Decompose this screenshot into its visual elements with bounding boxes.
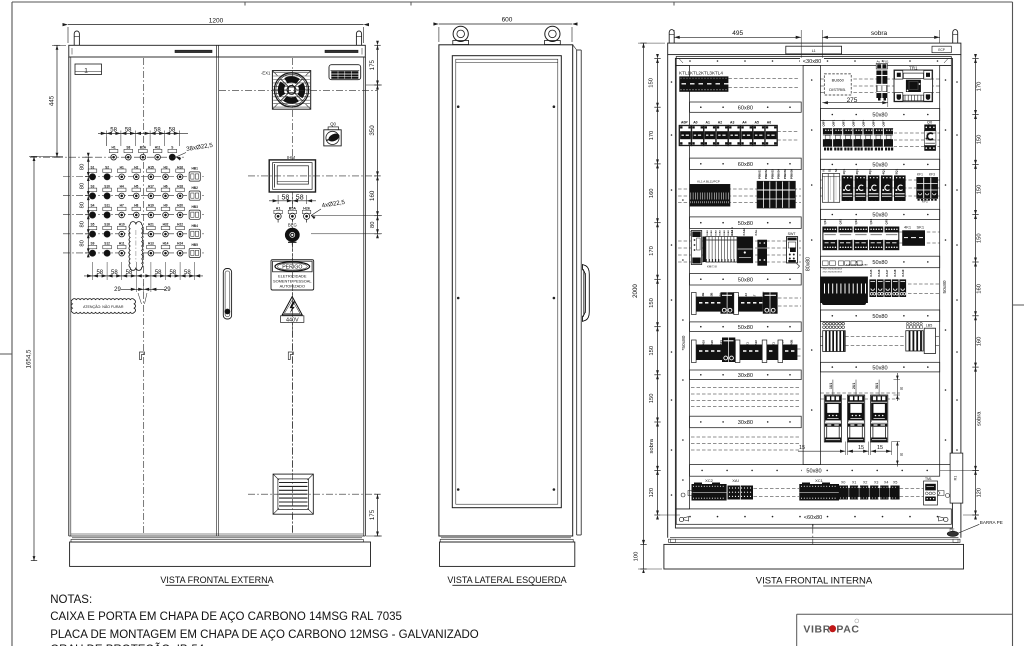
svg-text:30x80: 30x80 xyxy=(738,373,753,379)
svg-text:CAIXA E PORTA EM CHAPA DE AÇO: CAIXA E PORTA EM CHAPA DE AÇO CARBONO 14… xyxy=(50,611,402,623)
svg-text:Q0F4: Q0F4 xyxy=(862,119,866,126)
svg-text:S9: S9 xyxy=(91,242,95,246)
svg-text:H20: H20 xyxy=(177,204,183,208)
svg-text:VISTA FRONTAL INTERNA: VISTA FRONTAL INTERNA xyxy=(756,576,873,587)
svg-text:50x80: 50x80 xyxy=(738,221,753,227)
svg-text:S12: S12 xyxy=(104,242,110,246)
svg-text:170: 170 xyxy=(977,82,983,92)
svg-text:H22: H22 xyxy=(177,223,183,227)
svg-text:P0B6S4: P0B6S4 xyxy=(777,168,781,179)
svg-text:4Q1: 4Q1 xyxy=(881,168,885,174)
svg-text:S11: S11 xyxy=(104,204,110,208)
svg-text:XC1: XC1 xyxy=(815,478,824,483)
svg-text:S1B3: S1B3 xyxy=(707,230,709,236)
svg-text:A4: A4 xyxy=(742,120,746,124)
svg-text:FU1: FU1 xyxy=(883,60,889,64)
svg-text:160: 160 xyxy=(977,284,983,294)
svg-text:80: 80 xyxy=(370,222,376,228)
svg-text:XAI: XAI xyxy=(732,478,738,483)
svg-text:R1: R1 xyxy=(954,476,958,481)
svg-text:80: 80 xyxy=(80,164,86,170)
svg-text:A5: A5 xyxy=(755,120,759,124)
svg-text:*50x80: *50x80 xyxy=(681,335,687,350)
svg-text:2000: 2000 xyxy=(632,284,639,298)
svg-text:58: 58 xyxy=(126,270,133,276)
svg-text:15: 15 xyxy=(799,445,805,451)
svg-text:Av: Av xyxy=(877,60,881,64)
svg-text:H14: H14 xyxy=(163,242,169,246)
svg-text:S1B3: S1B3 xyxy=(715,230,717,236)
svg-text:SK1: SK1 xyxy=(917,224,925,229)
svg-text:sobra: sobra xyxy=(977,411,983,426)
svg-text:KA15: KA15 xyxy=(869,269,873,276)
svg-text:50x80: 50x80 xyxy=(806,469,821,475)
svg-text:H32: H32 xyxy=(163,223,169,227)
svg-text:PAC: PAC xyxy=(836,624,859,636)
svg-text:H7: H7 xyxy=(120,204,124,208)
svg-text:P0B6S6: P0B6S6 xyxy=(790,168,794,179)
svg-text:KF3: KF3 xyxy=(929,173,935,177)
svg-text:2U1: 2U1 xyxy=(852,383,856,389)
svg-text:2Q1: 2Q1 xyxy=(855,168,859,174)
svg-text:170: 170 xyxy=(649,131,655,141)
svg-text:150: 150 xyxy=(649,78,655,88)
svg-text:S5: S5 xyxy=(91,223,95,227)
svg-text:H5: H5 xyxy=(134,184,138,188)
svg-text:KTL1KTL2KTL3KTL4: KTL1KTL2KTL3KTL4 xyxy=(679,70,723,75)
svg-text:3Q1: 3Q1 xyxy=(868,168,872,174)
svg-text:S2: S2 xyxy=(105,165,109,169)
svg-text:Q0F6: Q0F6 xyxy=(872,119,876,126)
svg-text:58: 58 xyxy=(96,270,103,276)
svg-text:QF2: QF2 xyxy=(838,218,842,224)
svg-text:KA18: KA18 xyxy=(893,269,897,276)
svg-text:5Q1: 5Q1 xyxy=(894,168,898,174)
svg-text:60x80: 60x80 xyxy=(738,105,753,111)
svg-text:B1A: B1A xyxy=(140,146,147,150)
svg-text:H11: H11 xyxy=(155,146,161,150)
svg-text:Q0F2: Q0F2 xyxy=(842,119,846,126)
svg-text:HB5: HB5 xyxy=(192,243,199,247)
svg-text:LB5: LB5 xyxy=(926,324,932,328)
svg-text:80: 80 xyxy=(80,202,86,208)
svg-text:80: 80 xyxy=(80,221,86,227)
svg-text:58: 58 xyxy=(169,128,176,134)
svg-text:H24: H24 xyxy=(177,242,183,246)
svg-text:50x80: 50x80 xyxy=(872,365,887,371)
svg-text:P0B6S3: P0B6S3 xyxy=(770,168,774,179)
svg-text:H1: H1 xyxy=(112,146,116,150)
svg-text:58: 58 xyxy=(125,128,132,134)
svg-text:58: 58 xyxy=(111,270,118,276)
svg-text:KL1 A BL11/PCP: KL1 A BL11/PCP xyxy=(697,180,719,184)
svg-text:29: 29 xyxy=(164,287,171,293)
svg-text:50x80: 50x80 xyxy=(738,325,753,331)
svg-text:X5: X5 xyxy=(893,480,897,484)
svg-text:150: 150 xyxy=(649,346,655,356)
svg-text:1200: 1200 xyxy=(209,18,224,25)
svg-text:ECP: ECP xyxy=(938,48,945,52)
svg-text:30x80: 30x80 xyxy=(738,420,753,426)
svg-text:Q0F5: Q0F5 xyxy=(822,119,826,126)
svg-text:TM1: TM1 xyxy=(925,477,932,481)
svg-text:PLACA DE MONTAGEM EM CHAPA DE: PLACA DE MONTAGEM EM CHAPA DE AÇO CARBON… xyxy=(50,629,479,641)
svg-text:H10: H10 xyxy=(119,223,125,227)
svg-text:H18: H18 xyxy=(177,184,183,188)
svg-text:P0B6S5: P0B6S5 xyxy=(783,168,787,179)
svg-text:150: 150 xyxy=(976,135,982,145)
svg-text:120: 120 xyxy=(649,488,655,498)
svg-text:S3: S3 xyxy=(834,168,838,172)
svg-text:58: 58 xyxy=(155,270,162,276)
svg-text:150: 150 xyxy=(649,298,655,308)
svg-text:50x80: 50x80 xyxy=(738,277,753,283)
svg-text:4K1: 4K1 xyxy=(904,224,912,229)
svg-text:S1B3: S1B3 xyxy=(711,230,713,236)
svg-text:A3: A3 xyxy=(730,120,734,124)
svg-text:BU660: BU660 xyxy=(832,78,845,83)
svg-text:50x80: 50x80 xyxy=(942,280,948,293)
svg-text:HB2: HB2 xyxy=(192,186,199,190)
svg-text:S1: S1 xyxy=(828,168,832,172)
svg-text:50x80: 50x80 xyxy=(872,260,887,266)
svg-text:KA17: KA17 xyxy=(885,269,889,276)
svg-text:X0: X0 xyxy=(841,480,845,484)
svg-text:A1A2A3A4A5A6A7A8: A1A2A3A4A5A6A7A8 xyxy=(846,263,868,266)
svg-text:A0: A0 xyxy=(693,120,697,124)
svg-text:A2: A2 xyxy=(718,120,722,124)
svg-text:H9: H9 xyxy=(163,204,167,208)
svg-text:VIBR: VIBR xyxy=(803,624,831,636)
svg-text:58: 58 xyxy=(154,128,161,134)
svg-text:H2: H2 xyxy=(134,165,138,169)
svg-text:KA12: KA12 xyxy=(742,228,746,236)
svg-text:A1: A1 xyxy=(276,207,281,211)
svg-text:KAL: KAL xyxy=(754,229,758,235)
svg-text:<60x80: <60x80 xyxy=(804,515,823,521)
svg-text:sobra: sobra xyxy=(649,438,655,453)
svg-text:X4: X4 xyxy=(884,480,888,484)
svg-text:S1: S1 xyxy=(91,165,95,169)
svg-text:15: 15 xyxy=(858,445,864,451)
svg-text:445: 445 xyxy=(49,95,56,106)
svg-text:IHM: IHM xyxy=(287,155,295,160)
svg-text:XC2: XC2 xyxy=(705,478,714,483)
svg-text:-EX1: -EX1 xyxy=(261,71,271,76)
svg-text:V1: V1 xyxy=(822,168,826,172)
svg-text:160: 160 xyxy=(369,190,376,201)
svg-text:80: 80 xyxy=(80,183,86,189)
svg-text:175: 175 xyxy=(369,509,376,520)
svg-text:H16: H16 xyxy=(177,165,183,169)
svg-text:150: 150 xyxy=(976,233,982,243)
svg-text:H13: H13 xyxy=(148,242,154,246)
svg-text:DISTRIB.: DISTRIB. xyxy=(829,87,846,92)
svg-text:S: S xyxy=(171,146,173,150)
svg-text:H3: H3 xyxy=(163,165,167,169)
svg-text:50x80: 50x80 xyxy=(872,113,887,119)
svg-text:QF3: QF3 xyxy=(854,218,858,224)
svg-text:100: 100 xyxy=(634,552,640,562)
svg-text:58: 58 xyxy=(169,270,176,276)
svg-text:120: 120 xyxy=(977,488,983,498)
svg-text:60x80: 60x80 xyxy=(738,162,753,168)
svg-text:BARRA PE: BARRA PE xyxy=(980,520,1003,525)
svg-text:X1: X1 xyxy=(852,480,856,484)
svg-text:sobra: sobra xyxy=(871,30,888,37)
svg-text:X3: X3 xyxy=(874,480,878,484)
svg-text:KA19: KA19 xyxy=(901,269,905,276)
svg-text:150: 150 xyxy=(649,394,655,404)
svg-text:A0P: A0P xyxy=(681,120,688,124)
svg-text:58: 58 xyxy=(110,128,117,134)
svg-text:170: 170 xyxy=(649,246,655,256)
svg-text:160: 160 xyxy=(977,337,983,347)
svg-text:58: 58 xyxy=(282,195,290,202)
svg-text:Q0: Q0 xyxy=(927,120,933,125)
svg-text:XXX XXXXXXXXXX: XXX XXXXXXXXXX xyxy=(823,268,843,270)
svg-text:S8: S8 xyxy=(126,146,130,150)
svg-text:P0B6S1: P0B6S1 xyxy=(758,168,762,179)
svg-text:VISTA LATERAL ESQUERDA: VISTA LATERAL ESQUERDA xyxy=(447,575,566,585)
svg-text:160: 160 xyxy=(649,188,655,198)
svg-text:A6: A6 xyxy=(767,120,771,124)
svg-text:S1B3: S1B3 xyxy=(720,230,722,236)
svg-text:QF4: QF4 xyxy=(869,218,873,224)
svg-text:B5A: B5A xyxy=(289,207,297,211)
svg-text:Q0F1: Q0F1 xyxy=(832,119,836,126)
svg-text:495: 495 xyxy=(732,30,743,37)
svg-text:275: 275 xyxy=(847,97,858,104)
svg-text:<30x80: <30x80 xyxy=(803,59,822,65)
svg-text:H1: H1 xyxy=(120,165,124,169)
svg-text:29: 29 xyxy=(114,287,121,293)
svg-text:ATENÇÃO: NÃO FURAR: ATENÇÃO: NÃO FURAR xyxy=(83,304,124,309)
svg-text:S1B3: S1B3 xyxy=(724,230,726,236)
svg-text:QF5: QF5 xyxy=(885,218,889,224)
svg-text:350: 350 xyxy=(369,125,376,136)
svg-text:BEG: BEG xyxy=(288,223,297,228)
svg-text:H6: H6 xyxy=(163,184,167,188)
svg-text:S4: S4 xyxy=(91,204,95,208)
svg-text:H8: H8 xyxy=(134,204,138,208)
svg-text:H19: H19 xyxy=(148,204,154,208)
svg-text:KM/7,/8: KM/7,/8 xyxy=(707,265,717,269)
svg-text:Q0F7: Q0F7 xyxy=(882,119,886,126)
svg-text:HB3: HB3 xyxy=(192,205,199,209)
svg-text:HB1: HB1 xyxy=(192,167,199,171)
svg-text:80: 80 xyxy=(80,240,86,246)
svg-text:3U1: 3U1 xyxy=(875,383,879,389)
svg-text:KF2: KF2 xyxy=(922,200,928,204)
svg-text:175: 175 xyxy=(369,59,376,70)
svg-text:H26: H26 xyxy=(303,207,310,211)
svg-text:600: 600 xyxy=(502,17,513,24)
svg-text:VISTA FRONTAL EXTERNA: VISTA FRONTAL EXTERNA xyxy=(160,575,273,585)
svg-text:H21: H21 xyxy=(148,223,154,227)
svg-text:15: 15 xyxy=(877,445,883,451)
svg-text:Q0: Q0 xyxy=(330,122,336,127)
svg-text:XXX XXXXXXXXXX: XXX XXXXXXXXXX xyxy=(823,272,843,274)
svg-text:58: 58 xyxy=(184,270,191,276)
svg-text:1654,5: 1654,5 xyxy=(26,349,33,368)
svg-text:KA1 A: KA1 A xyxy=(730,226,734,235)
svg-text:H4: H4 xyxy=(120,184,124,188)
svg-text:KF1: KF1 xyxy=(917,173,923,177)
svg-text:X2: X2 xyxy=(863,480,867,484)
svg-text:58: 58 xyxy=(296,195,304,202)
svg-text:H17: H17 xyxy=(148,184,154,188)
svg-text:SWT: SWT xyxy=(788,232,797,236)
svg-text:KA16: KA16 xyxy=(877,269,881,276)
svg-text:S10: S10 xyxy=(104,184,110,188)
svg-text:S3: S3 xyxy=(91,184,95,188)
svg-text:80x80: 80x80 xyxy=(805,257,811,271)
svg-text:QF1: QF1 xyxy=(823,218,827,224)
svg-text:50x80: 50x80 xyxy=(872,163,887,169)
svg-text:A1: A1 xyxy=(706,120,710,124)
svg-text:H11: H11 xyxy=(119,242,125,246)
svg-text:50x80: 50x80 xyxy=(872,213,887,219)
svg-text:H15: H15 xyxy=(148,165,154,169)
svg-text:Q0F3: Q0F3 xyxy=(852,119,856,126)
svg-text:L1: L1 xyxy=(812,49,816,53)
svg-text:1: 1 xyxy=(84,67,88,74)
svg-text:S16: S16 xyxy=(104,223,110,227)
svg-text:50x80: 50x80 xyxy=(872,314,887,320)
svg-text:1U1: 1U1 xyxy=(829,383,833,389)
svg-text:HB4: HB4 xyxy=(192,224,199,228)
svg-text:1Q1: 1Q1 xyxy=(842,168,846,174)
svg-text:150: 150 xyxy=(976,185,982,195)
svg-text:P0B6S2: P0B6S2 xyxy=(764,168,768,179)
svg-text:NOTAS:: NOTAS: xyxy=(50,594,92,606)
